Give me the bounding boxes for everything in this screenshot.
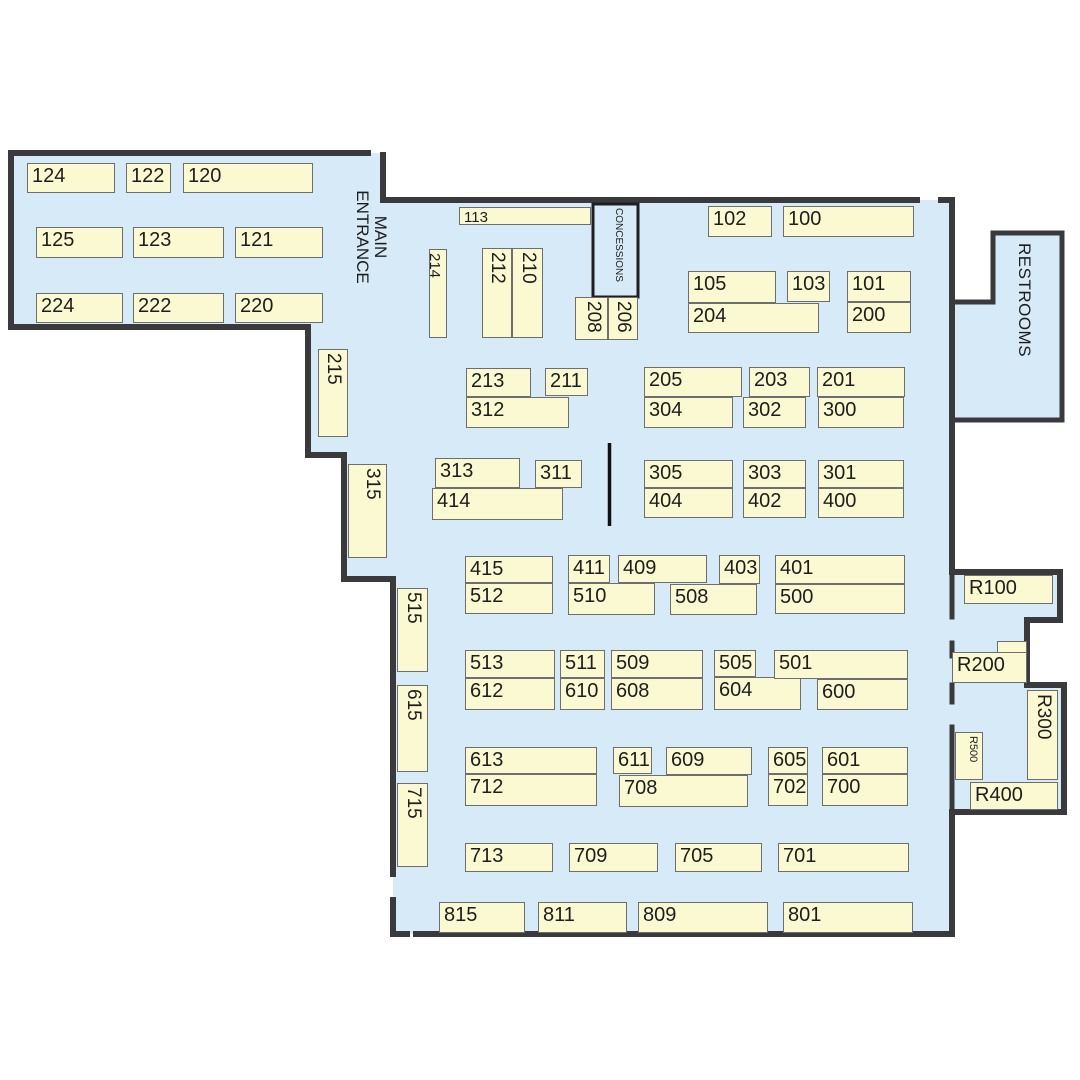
- booth-220: 220: [235, 293, 323, 323]
- booth-312: 312: [466, 397, 569, 428]
- booth-609: 609: [666, 747, 752, 775]
- booth-305: 305: [644, 460, 733, 488]
- booth-700: 700: [822, 774, 908, 806]
- booth-206: 206: [608, 297, 638, 340]
- booth-713: 713: [465, 843, 553, 872]
- booth-205: 205: [644, 367, 742, 397]
- booth-102: 102: [708, 206, 772, 237]
- booth-615: 615: [397, 685, 428, 772]
- booth-610: 610: [560, 678, 605, 710]
- booth-404: 404: [644, 488, 733, 518]
- booth-r200: R200: [952, 652, 1027, 683]
- booth-125: 125: [36, 227, 123, 258]
- booth-708: 708: [619, 775, 748, 807]
- booth-414: 414: [432, 488, 563, 520]
- booth-211: 211: [545, 368, 588, 396]
- booth-401: 401: [775, 555, 905, 584]
- booth-layer: 1241221201251231212242222201132142122102…: [0, 0, 1080, 1080]
- booth-601: 601: [822, 747, 908, 774]
- booth-224: 224: [36, 293, 123, 323]
- booth-r400: R400: [970, 782, 1058, 810]
- booth-302: 302: [743, 397, 806, 428]
- booth-301: 301: [818, 460, 904, 488]
- booth-200: 200: [847, 302, 911, 333]
- booth-210: 210: [512, 248, 543, 338]
- booth-815: 815: [439, 902, 525, 933]
- booth-105: 105: [688, 271, 776, 303]
- floorplan: 1241221201251231212242222201132142122102…: [0, 0, 1080, 1080]
- booth-811: 811: [538, 902, 627, 933]
- booth-113: 113: [459, 207, 591, 225]
- booth-123: 123: [133, 227, 224, 258]
- booth-212: 212: [482, 248, 512, 338]
- booth-509: 509: [611, 650, 703, 678]
- booth-315: 315: [348, 464, 387, 558]
- booth-513: 513: [465, 650, 555, 678]
- main-entrance-label: MAIN ENTRANCE: [353, 187, 389, 287]
- booth-201: 201: [817, 367, 905, 397]
- booth-501: 501: [774, 650, 908, 679]
- booth-300: 300: [818, 397, 904, 428]
- booth-313: 313: [435, 458, 520, 488]
- booth-r100: R100: [964, 575, 1053, 604]
- booth-605: 605: [768, 747, 808, 774]
- booth-613: 613: [465, 747, 597, 774]
- booth-715: 715: [397, 783, 428, 867]
- concessions-label: CONCESSIONS: [606, 208, 624, 298]
- booth-203: 203: [749, 367, 810, 397]
- booth-120: 120: [183, 163, 313, 193]
- booth-402: 402: [743, 488, 806, 518]
- booth-705: 705: [675, 843, 762, 872]
- booth-222: 222: [133, 293, 224, 323]
- booth-215: 215: [318, 349, 348, 437]
- booth-500: 500: [775, 584, 905, 614]
- booth-604: 604: [714, 677, 801, 710]
- booth-508: 508: [670, 584, 757, 615]
- booth-100: 100: [783, 206, 914, 237]
- booth-101: 101: [847, 271, 911, 302]
- booth-409: 409: [618, 555, 707, 583]
- booth-208: 208: [575, 297, 608, 340]
- booth-304: 304: [644, 397, 733, 428]
- booth-712: 712: [465, 774, 597, 806]
- restrooms-label: RESTROOMS: [1010, 243, 1034, 421]
- booth-103: 103: [787, 271, 830, 302]
- booth-403: 403: [719, 555, 760, 584]
- booth-r500: R500: [955, 732, 983, 780]
- booth-510: 510: [568, 583, 655, 615]
- booth-311: 311: [535, 460, 582, 488]
- booth-701: 701: [778, 843, 909, 872]
- booth-213: 213: [466, 368, 531, 397]
- booth-121: 121: [235, 227, 323, 258]
- booth-809: 809: [638, 902, 768, 933]
- booth-608: 608: [611, 678, 703, 710]
- booth-612: 612: [465, 678, 555, 710]
- booth-600: 600: [817, 679, 908, 710]
- booth-709: 709: [569, 843, 658, 872]
- booth-303: 303: [743, 460, 806, 488]
- booth-400: 400: [818, 488, 904, 518]
- booth-411: 411: [568, 555, 610, 583]
- booth-415: 415: [465, 556, 553, 583]
- booth-204: 204: [688, 303, 819, 333]
- booth-515: 515: [397, 588, 428, 672]
- booth-801: 801: [783, 902, 913, 933]
- booth-214: 214: [429, 249, 447, 338]
- booth-124: 124: [27, 163, 115, 193]
- booth-505: 505: [714, 650, 756, 677]
- booth-511: 511: [560, 650, 605, 678]
- booth-r300: R300: [1027, 690, 1058, 780]
- booth-611: 611: [613, 747, 652, 774]
- booth-702: 702: [768, 774, 808, 806]
- booth-512: 512: [465, 583, 553, 614]
- booth-122: 122: [126, 163, 171, 193]
